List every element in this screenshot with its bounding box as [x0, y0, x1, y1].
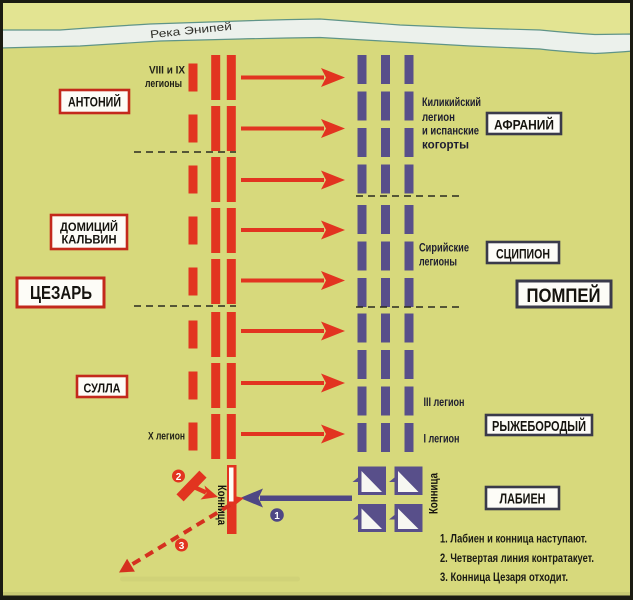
svg-text:легионы: легионы	[145, 78, 182, 90]
svg-text:Сирийские: Сирийские	[419, 243, 469, 255]
svg-text:ПОМПЕЙ: ПОМПЕЙ	[527, 285, 601, 307]
svg-text:когорты: когорты	[422, 140, 469, 152]
svg-text:КАЛЬВИН: КАЛЬВИН	[62, 233, 117, 247]
svg-text:и испанские: и испанские	[422, 126, 479, 138]
svg-text:ЦЕЗАРЬ: ЦЕЗАРЬ	[30, 283, 92, 303]
svg-text:I легион: I легион	[424, 434, 460, 446]
svg-text:3. Конница Цезаря отходит.: 3. Конница Цезаря отходит.	[440, 572, 568, 584]
svg-text:2: 2	[176, 472, 182, 483]
svg-text:1: 1	[274, 511, 280, 522]
svg-text:легионы: легионы	[419, 257, 457, 269]
svg-text:АНТОНИЙ: АНТОНИЙ	[68, 95, 121, 110]
svg-text:АФРАНИЙ: АФРАНИЙ	[494, 116, 554, 133]
svg-text:VIII и IX: VIII и IX	[149, 65, 186, 77]
svg-text:СУЛЛА: СУЛЛА	[84, 381, 121, 396]
svg-text:Конница: Конница	[427, 473, 441, 514]
svg-text:ЛАБИЕН: ЛАБИЕН	[500, 492, 546, 508]
svg-text:Х легион: Х легион	[148, 431, 185, 443]
svg-text:легион: легион	[422, 112, 455, 124]
svg-text:СЦИПИОН: СЦИПИОН	[496, 246, 550, 262]
svg-text:1. Лабиен и конница наступают.: 1. Лабиен и конница наступают.	[440, 534, 587, 546]
svg-text:3: 3	[179, 541, 185, 552]
svg-text:2. Четвертая линия контратакуе: 2. Четвертая линия контратакует.	[440, 553, 594, 565]
svg-text:III легион: III легион	[424, 397, 465, 409]
svg-text:РЫЖЕБОРОДЫЙ: РЫЖЕБОРОДЫЙ	[492, 417, 586, 435]
svg-text:Киликийский: Киликийский	[422, 97, 481, 109]
